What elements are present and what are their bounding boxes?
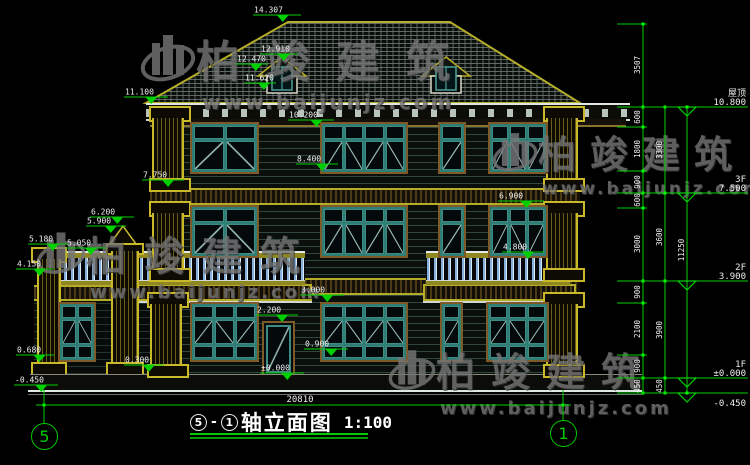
spot-elevation-value: 4.800: [503, 243, 527, 252]
spot-elevation-triangle: [111, 217, 123, 224]
spot-elevation-triangle: [34, 355, 46, 362]
dimension-value: 450: [633, 379, 642, 393]
dimension-value: 600: [633, 193, 642, 207]
spot-elevation-triangle: [311, 120, 323, 127]
spot-elevation-value: 7.750: [143, 171, 167, 180]
spot-elevation-value: 0.680: [17, 346, 41, 355]
dimension-value: 3507: [633, 56, 642, 74]
dimension-tick-dot: [686, 392, 689, 395]
elevation-drawing-canvas: 柏竣建筑 www.baijunjz.com 柏竣建筑 www.baijunjz.…: [0, 0, 750, 465]
dimension-tick-dot: [664, 192, 667, 195]
spot-elevation-triangle: [321, 295, 333, 302]
overall-dimension-value: 20810: [286, 395, 313, 405]
spot-elevation-value: 5.180: [29, 235, 53, 244]
dimension-value: 900: [633, 285, 642, 299]
spot-elevation-value: ±0.000: [261, 364, 290, 373]
dimension-tick-dot: [642, 23, 645, 26]
dimension-value: 600: [633, 110, 642, 124]
floor-level-value: ±0.000: [713, 369, 746, 379]
spot-elevation-value: 11.620: [245, 74, 274, 83]
spot-elevation-triangle: [143, 365, 155, 372]
axis-bubble-1: 1: [550, 420, 577, 447]
dimension-value: 1800: [633, 139, 642, 158]
spot-elevation-value: 11.100: [125, 88, 154, 97]
dimension-value: 3600: [655, 227, 664, 246]
spot-elevation-value: 0.300: [125, 356, 149, 365]
spot-elevation-triangle: [162, 180, 174, 187]
spot-elevation-value: 5.900: [87, 217, 111, 226]
spot-elevation-triangle: [278, 54, 290, 61]
dimension-value: 450: [655, 379, 664, 393]
dimension-tick-dot: [686, 106, 689, 109]
dimension-tick-dot: [642, 170, 645, 173]
spot-elevation-value: 4.150: [17, 260, 41, 269]
spot-elevation-triangle: [325, 349, 337, 356]
dimension-value: 3300: [655, 140, 664, 159]
spot-elevation-value: 6.900: [499, 192, 523, 201]
spot-elevation-triangle: [35, 385, 47, 392]
dimension-tick-dot: [664, 377, 667, 380]
spot-elevation-triangle: [258, 83, 270, 90]
dimension-tick-dot: [642, 354, 645, 357]
spot-elevation-triangle: [521, 201, 533, 208]
axis-bubble-5: 5: [31, 423, 58, 450]
spot-elevation-triangle: [277, 15, 289, 22]
dimension-value: 900: [633, 359, 642, 373]
dimension-value: 3900: [655, 320, 664, 339]
spot-elevation-value: 3.000: [301, 286, 325, 295]
title-axis-to: 1: [221, 414, 238, 431]
spot-elevation-triangle: [281, 373, 293, 380]
spot-elevation-value: -0.450: [15, 376, 44, 385]
spot-elevation-triangle: [276, 315, 288, 322]
spot-elevation-value: 14.307: [254, 6, 283, 15]
spot-elevation-value: 0.900: [305, 340, 329, 349]
dimension-tick-dot: [664, 280, 667, 283]
spot-elevation-value: 6.200: [91, 208, 115, 217]
dimension-value: 2100: [633, 319, 642, 338]
floor-level-value: 3.900: [719, 272, 746, 282]
spot-elevation-value: 12.470: [237, 55, 266, 64]
title-underline: [190, 433, 368, 435]
title-separator: -: [211, 414, 217, 430]
annotations: 14.30712.91012.47011.62011.10010.2008.40…: [0, 0, 750, 465]
spot-elevation-value: 8.400: [297, 155, 321, 164]
title-underline-2: [190, 437, 368, 439]
spot-elevation-triangle: [316, 164, 328, 171]
spot-elevation-triangle: [250, 64, 262, 71]
floor-level-value: 10.800: [713, 98, 746, 108]
spot-elevation-value: 2.200: [257, 306, 281, 315]
spot-elevation-triangle: [34, 269, 46, 276]
spot-elevation-triangle: [145, 97, 157, 104]
floor-level-value: -0.450: [713, 399, 746, 409]
title-scale: 1:100: [344, 413, 392, 432]
dimension-tick-dot: [642, 302, 645, 305]
spot-elevation-value: 10.200: [289, 111, 318, 120]
spot-elevation-value: 5.050: [67, 239, 91, 248]
dimension-value: 900: [633, 175, 642, 189]
spot-elevation-triangle: [522, 252, 534, 259]
spot-elevation-value: 12.910: [261, 45, 290, 54]
title-axis-from: 5: [190, 414, 207, 431]
floor-level-value: 7.500: [719, 184, 746, 194]
dimension-tick-dot: [642, 126, 645, 129]
dimension-value: 3000: [633, 234, 642, 253]
spot-elevation-triangle: [105, 226, 117, 233]
spot-elevation-triangle: [85, 248, 97, 255]
dimension-value: 11250: [677, 238, 686, 261]
spot-elevation-triangle: [47, 244, 59, 251]
